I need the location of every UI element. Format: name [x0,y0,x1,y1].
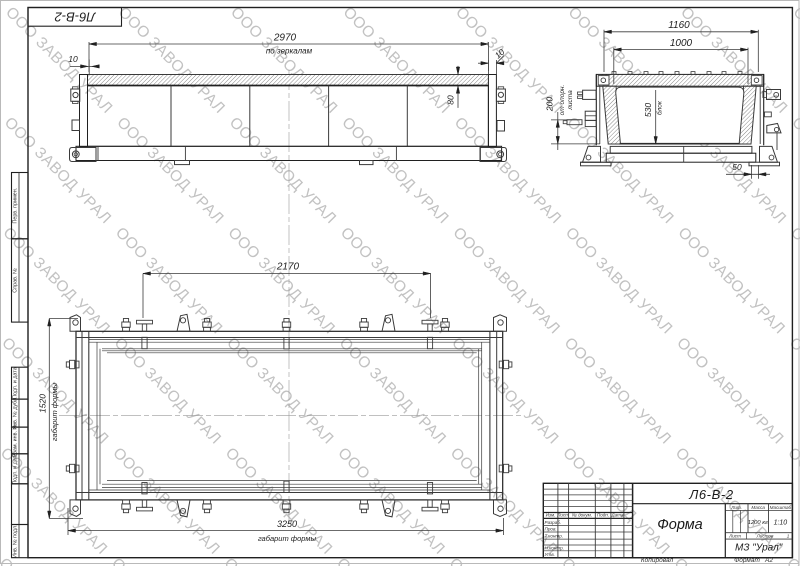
svg-text:№ докум.: № докум. [572,513,592,518]
svg-text:200: 200 [545,97,555,112]
svg-text:Взам. инв. №: Взам. инв. № [12,424,18,458]
svg-text:Изм.: Изм. [546,513,556,518]
svg-text:Подп.: Подп. [597,513,609,518]
svg-text:Масштаб: Масштаб [770,505,792,510]
svg-text:530: 530 [643,103,653,117]
svg-text:50: 50 [732,162,742,172]
svg-text:Форма: Форма [657,517,703,533]
svg-text:1520: 1520 [37,394,47,413]
svg-text:Подп. и дата: Подп. и дата [12,453,18,485]
svg-text:1:10: 1:10 [774,520,788,527]
svg-text:Листов: Листов [756,534,774,539]
svg-text:Пров.: Пров. [545,526,557,531]
svg-text:по зеркалам: по зеркалам [266,47,313,56]
svg-text:блок: блок [656,100,664,115]
svg-text:Утв.: Утв. [545,552,555,557]
svg-text:1160: 1160 [668,20,690,31]
svg-text:листа: листа [567,90,574,111]
svg-text:Л6-В-2: Л6-В-2 [688,487,733,502]
svg-text:10: 10 [68,54,78,64]
svg-text:Подп. и дата: Подп. и дата [12,367,18,399]
svg-text:габарит формы: габарит формы [258,534,317,543]
svg-text:80: 80 [446,95,456,105]
svg-text:1200 кг: 1200 кг [748,520,768,526]
svg-text:3250: 3250 [277,519,297,529]
svg-text:Лист: Лист [728,534,741,539]
svg-text:Справ. №: Справ. № [12,268,18,293]
svg-text:1: 1 [787,534,790,539]
svg-text:Дата: Дата [610,513,624,518]
svg-text:Лит.: Лит. [730,505,742,510]
svg-text:Н.контр.: Н.контр. [545,546,564,551]
svg-text:Разраб.: Разраб. [545,520,562,525]
svg-text:МЗ "Урал": МЗ "Урал" [735,543,783,554]
svg-text:2970: 2970 [273,33,297,44]
svg-text:от опорн.: от опорн. [559,84,566,115]
svg-text:Перв. примен.: Перв. примен. [12,188,18,224]
svg-text:Т.контр.: Т.контр. [545,534,564,539]
svg-text:Лист: Лист [556,513,569,518]
svg-text:Инв. № подл.: Инв. № подл. [12,524,18,558]
svg-text:2170: 2170 [276,262,300,273]
svg-text:Формат: Формат [734,557,760,564]
svg-text:Масса: Масса [751,505,765,510]
svg-text:Л6-В-2: Л6-В-2 [54,9,96,24]
svg-text:габарит формы: габарит формы [50,382,59,441]
svg-text:А2: А2 [764,557,773,564]
svg-text:1000: 1000 [670,38,693,49]
svg-text:Копировал: Копировал [641,557,674,564]
